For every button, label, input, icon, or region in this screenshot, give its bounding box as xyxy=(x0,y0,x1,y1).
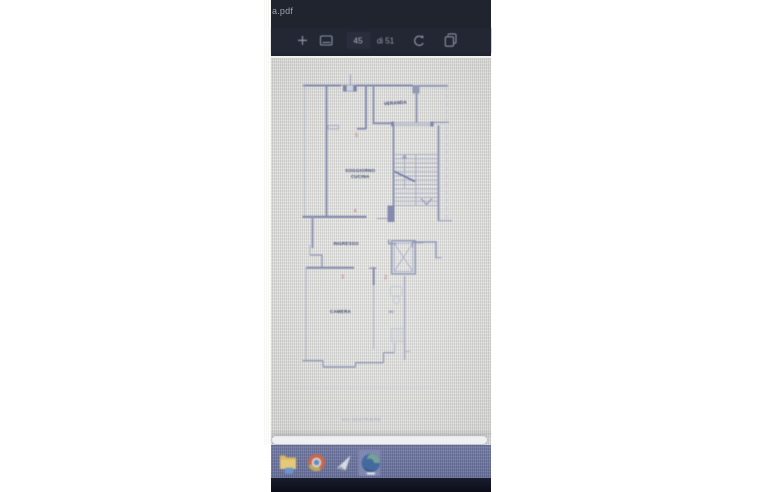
svg-text:5: 5 xyxy=(355,133,358,139)
svg-text:2: 2 xyxy=(384,275,387,281)
svg-text:VERANDA: VERANDA xyxy=(384,100,408,107)
svg-text:4: 4 xyxy=(353,209,356,215)
svg-text:INGRESSO: INGRESSO xyxy=(333,241,359,246)
svg-text:WC: WC xyxy=(389,310,395,314)
svg-text:CUCINA: CUCINA xyxy=(351,174,370,179)
svg-text:di 51: di 51 xyxy=(377,36,395,45)
svg-text:VIA SESTRIERE: VIA SESTRIERE xyxy=(342,417,382,422)
svg-text:SOGGIORNO: SOGGIORNO xyxy=(345,168,375,173)
svg-text:45: 45 xyxy=(353,35,363,45)
svg-text:CAMERA: CAMERA xyxy=(330,309,351,314)
svg-text:3: 3 xyxy=(341,275,344,281)
